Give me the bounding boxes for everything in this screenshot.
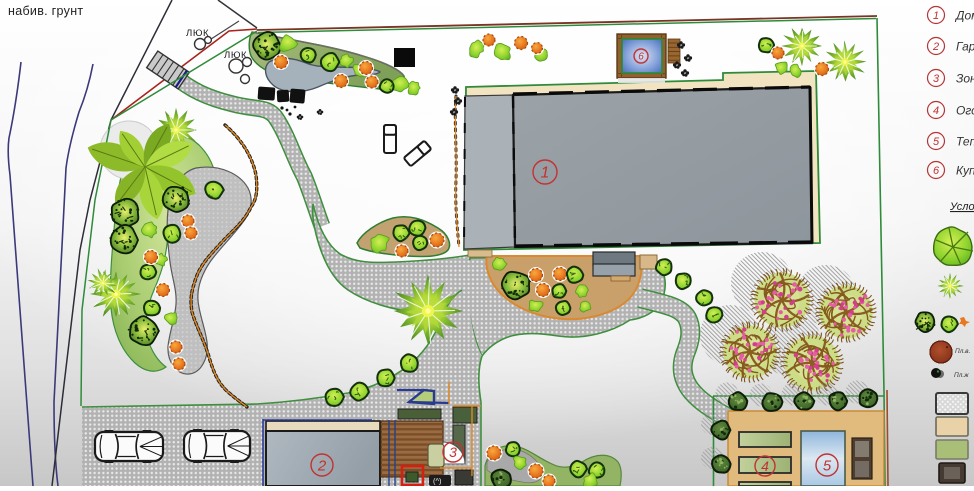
svg-text:3: 3 bbox=[449, 444, 457, 460]
svg-text:6: 6 bbox=[638, 52, 644, 63]
svg-text:2: 2 bbox=[932, 41, 939, 53]
svg-text:Теплица: Теплица bbox=[956, 135, 974, 149]
svg-text:2: 2 bbox=[317, 457, 327, 474]
svg-text:Пл.в.: Пл.в. bbox=[955, 348, 971, 355]
svg-text:1: 1 bbox=[933, 10, 939, 22]
svg-text:набив. грунт: набив. грунт bbox=[8, 4, 83, 18]
svg-text:5: 5 bbox=[823, 457, 832, 474]
svg-text:Дом: Дом bbox=[954, 9, 974, 23]
svg-text:3: 3 bbox=[933, 73, 940, 85]
svg-text:Огород: Огород bbox=[956, 104, 974, 118]
svg-text:Купель: Купель bbox=[956, 164, 974, 178]
svg-text:(^): (^) bbox=[433, 477, 442, 486]
svg-text:5: 5 bbox=[933, 136, 940, 148]
svg-text:Пл.ж: Пл.ж bbox=[954, 372, 969, 379]
svg-text:Зона отдыха: Зона отдыха bbox=[956, 72, 974, 86]
svg-text:6: 6 bbox=[933, 165, 940, 177]
svg-text:Гараж: Гараж bbox=[956, 40, 974, 54]
svg-text:4: 4 bbox=[761, 458, 769, 474]
svg-text:4: 4 bbox=[933, 105, 939, 117]
svg-text:Условные обозначения: Условные обозначения bbox=[949, 201, 974, 213]
svg-text:1: 1 bbox=[541, 165, 550, 182]
